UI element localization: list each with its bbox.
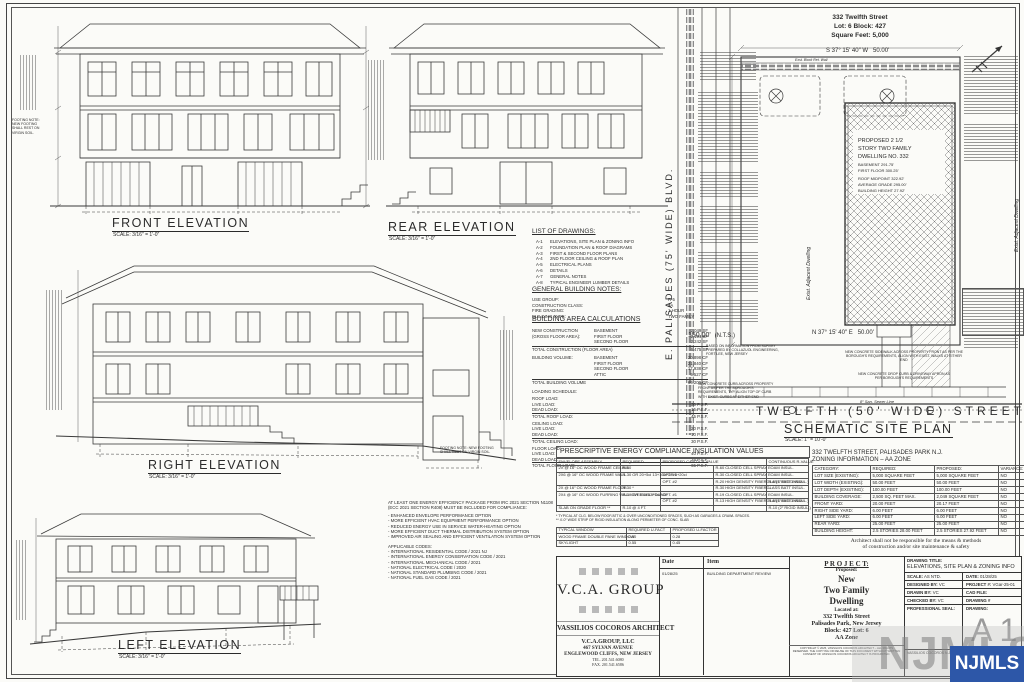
survey-note: BASED ON INFORMATION FROM SURVEY PREPARE… xyxy=(706,344,782,357)
firm-fax: FAX. 201.541.6586 xyxy=(557,663,659,668)
dwelling-first-floor-elev: FIRST FLOOR 300.25' xyxy=(858,169,898,174)
sidewalk-note: NEW CONCRETE SIDEWALK ACROSS PROPERTY FR… xyxy=(845,350,963,363)
micro-note-block xyxy=(700,300,758,324)
dimension-micro-text xyxy=(500,330,514,420)
micro-note-block xyxy=(964,56,1018,114)
right-elevation-scale: SCALE: 3/16″ = 1'-0″ xyxy=(149,474,195,480)
left-elevation-title: LEFT ELEVATION xyxy=(118,638,241,654)
adjacent-dwelling-right: Exist. Adjacent Dwelling xyxy=(1014,199,1020,252)
dwelling-building-height: BUILDING HEIGHT 27.92' xyxy=(858,189,905,194)
logo-squares-top xyxy=(557,561,659,580)
revision-panel: Date Item 01/28/25 BUILDING DEPARTMENT R… xyxy=(659,557,790,676)
list-of-drawings-title: LIST OF DRAWINGS: xyxy=(532,228,596,236)
logo-squares-bottom xyxy=(557,599,659,618)
firm-panel: V.C.A. GROUP VASSILIOS COCOROS ARCHITECT… xyxy=(557,557,660,676)
project-name-2: Two Family xyxy=(789,585,904,596)
right-elevation-title: RIGHT ELEVATION xyxy=(148,458,281,474)
firm-logo: V.C.A. GROUP xyxy=(557,581,659,599)
bearing-bottom: N 37° 15' 40″ E 50.00' xyxy=(812,330,874,337)
ret-wall-label: Exst. Block Ret. Wall xyxy=(795,58,827,62)
energy-package-note: AT LEAST ONE ENERGY EFFICIENCY PACKAGE F… xyxy=(388,500,556,580)
window-u-factor-table: TYPICAL WINDOWREQUIRED U-FACTPROPOSED U-… xyxy=(556,527,719,548)
dimension-micro-text xyxy=(46,290,62,410)
site-plan-scale: SCALE: 1″ = 10'-0″ xyxy=(785,437,827,443)
site-header-lot-block: Lot: 6 Block: 427 xyxy=(790,23,930,31)
drawing-title-label: DRAWING TITLE: xyxy=(904,557,1021,564)
drawing-title-value: ELEVATIONS, SITE PLAN & ZONING INFO xyxy=(904,564,1021,573)
list-of-drawings: A-1ELEVATIONS, SITE PLAN & ZONING INFO A… xyxy=(536,239,634,285)
dimension-micro-text xyxy=(20,55,38,110)
front-elevation-title: FRONT ELEVATION xyxy=(112,216,249,232)
apron-note: NEW CONCRETE DROP CURB & DRIVEWAY APRON … xyxy=(856,372,952,380)
site-plan-title: SCHEMATIC SITE PLAN xyxy=(784,422,953,438)
micro-note-block xyxy=(700,206,758,244)
footing-note-front: FOOTING NOTE: NEW FOOTING SHALL REST ON … xyxy=(12,118,46,135)
insulation-table: PRESCRIPTIVE ENERGY COMPLIANCE INSULATIO… xyxy=(556,446,810,547)
front-elevation-drawing xyxy=(42,8,377,216)
footing-note-right: FOOTING NOTE: NEW FOOTING SHALL REST ON … xyxy=(440,446,496,454)
general-building-notes-title: GENERAL BUILDING NOTES: xyxy=(532,286,621,294)
dwelling-label-1: PROPOSED 2 1/2 xyxy=(858,138,903,145)
street-label: TWELFTH (50' WIDE) STREET xyxy=(756,404,1024,418)
architectural-sheet: { "colors": {"ink":"#2b2b2b","paper":"#f… xyxy=(0,0,1024,682)
micro-note-block xyxy=(700,52,756,82)
njmls-logo-box: NJMLS xyxy=(950,646,1024,682)
project-name-1: New xyxy=(789,574,904,585)
dimension-micro-text xyxy=(16,540,28,620)
left-elevation-drawing xyxy=(26,502,328,660)
project-addr1: 332 Twelfth Street xyxy=(789,614,904,621)
rev-item-header: Item xyxy=(704,557,789,568)
rear-elevation-scale: SCALE: 3/16″ = 1'-0″ xyxy=(389,236,435,242)
site-header-address: 332 Twelfth Street xyxy=(790,14,930,22)
project-name-3: Dwelling xyxy=(789,596,904,607)
building-area-title: BUILDING AREA CALCULATIONS xyxy=(532,316,640,324)
left-elevation-scale: SCALE: 3/16″ = 1'-0″ xyxy=(119,654,165,660)
bearing-top: S 37° 15' 40″ W 50.00' xyxy=(826,48,889,55)
zoning-info: 332 TWELFTH STREET, PALISADES PARK N.J. … xyxy=(812,450,1024,551)
micro-note-block xyxy=(700,172,758,198)
njmls-logo-text: NJMLS xyxy=(955,653,1019,675)
micro-note-block xyxy=(964,338,1018,350)
project-heading: P R O J E C T: xyxy=(789,560,904,568)
rear-elevation-drawing xyxy=(382,10,672,216)
front-elevation-scale: SCALE: 3/16″ = 1'-0″ xyxy=(113,232,159,238)
dwelling-label-2: STORY TWO FAMILY xyxy=(858,146,912,153)
zoning-table: CATEGORY:REQUIRED:PROPOSED:VARIANCE: LOT… xyxy=(812,465,1024,535)
rev-date: 01/28/25 xyxy=(659,569,704,675)
architect-name: VASSILIOS COCOROS ARCHITECT xyxy=(557,621,659,635)
adjacent-dwelling-left: Exist. Adjacent Dwelling xyxy=(806,247,812,300)
curb-note: NEW CONCRETE CURB ACROSS PROPERTY FRONT … xyxy=(698,382,776,399)
micro-note-block xyxy=(698,252,758,292)
micro-note-block xyxy=(964,124,1018,162)
site-header-area: Square Feet: 5,000 xyxy=(790,32,930,40)
micro-note-box xyxy=(962,288,1024,336)
right-elevation-drawing xyxy=(38,246,520,478)
firm-llc: V.C.A.GROUP, LLC xyxy=(557,639,659,646)
rev-date-header: Date xyxy=(659,557,704,568)
dwelling-label-3: DWELLING NO. 332 xyxy=(858,154,909,161)
rev-item: BUILDING DEPARTMENT REVIEW xyxy=(704,569,789,675)
rear-elevation-title: REAR ELEVATION xyxy=(388,220,516,236)
micro-note-block xyxy=(698,92,758,164)
